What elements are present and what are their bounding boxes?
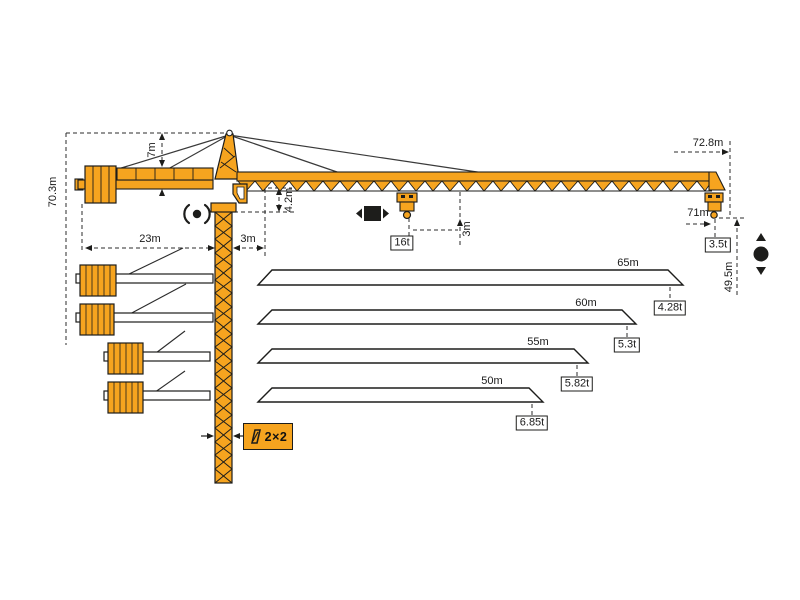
jib-tip xyxy=(709,172,725,190)
counter-jib xyxy=(75,166,213,203)
hook-icon xyxy=(711,212,717,218)
dim-jib-height: 4.2m xyxy=(283,188,295,212)
jib-root xyxy=(233,184,247,203)
dim-rear-offset: 3m xyxy=(240,233,255,245)
tower-mast xyxy=(211,203,236,483)
jib-option-length-50: 50m xyxy=(481,375,502,387)
counterweight-option-1 xyxy=(76,265,213,296)
hook-icon xyxy=(404,212,411,219)
tip-capacity-badge: 3.5t xyxy=(705,238,731,253)
jib-option-tipload-50: 6.85t xyxy=(516,416,548,431)
mast-section-label: 2×2 xyxy=(265,430,288,444)
dim-total-height: 70.3m xyxy=(47,177,59,208)
mast-section-icon xyxy=(249,428,261,445)
jib-bar-65m xyxy=(258,270,683,285)
slewing-icon xyxy=(184,205,209,223)
counter-jib-ballast xyxy=(85,166,116,203)
trolley-travel-icon xyxy=(356,206,389,221)
main-jib xyxy=(233,172,725,203)
jib-option-length-65: 65m xyxy=(617,257,638,269)
jib-bar-50m xyxy=(258,388,543,402)
dim-tower-head: 7m xyxy=(146,142,158,157)
jib-option-length-60: 60m xyxy=(575,297,596,309)
counterweight-option-3 xyxy=(104,343,210,374)
pendant-lines xyxy=(118,135,484,173)
jib-option-tipload-65: 4.28t xyxy=(654,301,686,316)
jib-bar-55m xyxy=(258,349,588,363)
counterweight-option-2 xyxy=(76,304,213,335)
counterweight-options xyxy=(76,265,213,413)
trolley-hook xyxy=(397,193,417,219)
hoist-icon xyxy=(754,233,769,275)
dim-max-radius: 71m xyxy=(687,207,708,219)
mast-section-badge: 2×2 xyxy=(243,423,293,450)
jib-option-tipload-60: 5.3t xyxy=(614,338,640,353)
max-capacity-badge: 16t xyxy=(390,236,413,251)
crane-load-diagram: 70.3m 7m 23m 3m 4.2m 16t 3m 72.8m 71m 3.… xyxy=(0,0,800,600)
dimension-arrowheads xyxy=(85,133,740,251)
jib-length-bars xyxy=(258,270,683,402)
jib-option-tipload-55: 5.82t xyxy=(561,377,593,392)
jib-bar-60m xyxy=(258,310,636,324)
dim-min-hook-offset: 3m xyxy=(461,221,473,236)
apex-pulley xyxy=(227,130,233,136)
turntable xyxy=(211,203,236,212)
dim-lift-height: 49.5m xyxy=(723,262,735,293)
dim-jib-length: 72.8m xyxy=(693,137,724,149)
jib-option-length-55: 55m xyxy=(527,336,548,348)
counterweight-option-4 xyxy=(104,382,210,413)
dim-counter-radius: 23m xyxy=(139,233,160,245)
